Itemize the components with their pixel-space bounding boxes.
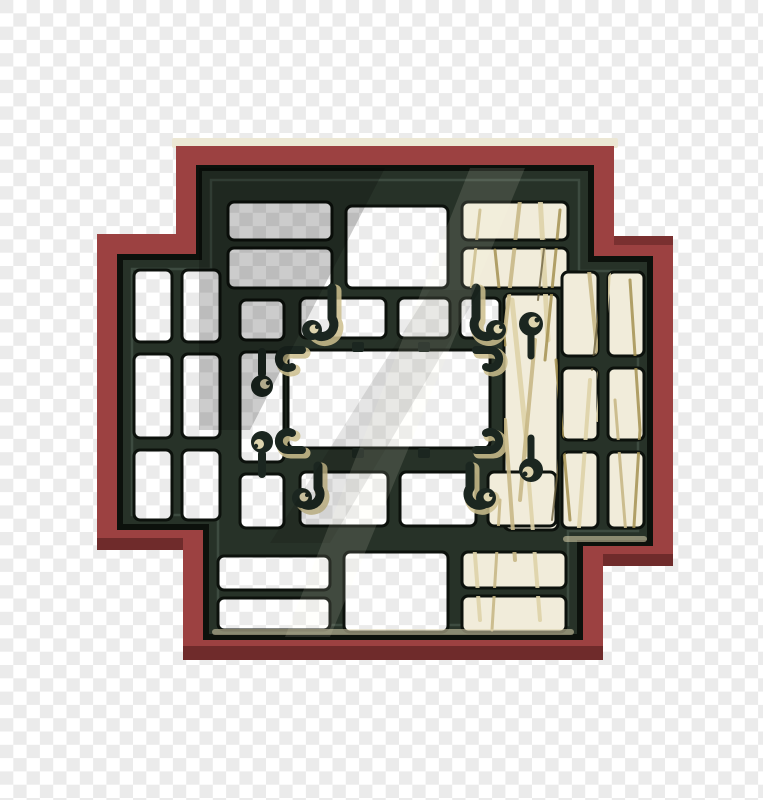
window-pane bbox=[240, 474, 284, 528]
chinese-window-illustration bbox=[0, 0, 763, 800]
window-pane bbox=[134, 270, 172, 342]
window-pane bbox=[608, 272, 644, 356]
window-pane bbox=[562, 368, 598, 440]
window-pane bbox=[134, 354, 172, 438]
image-canvas bbox=[0, 0, 763, 800]
window-pane bbox=[182, 450, 220, 520]
window-pane bbox=[134, 450, 172, 520]
